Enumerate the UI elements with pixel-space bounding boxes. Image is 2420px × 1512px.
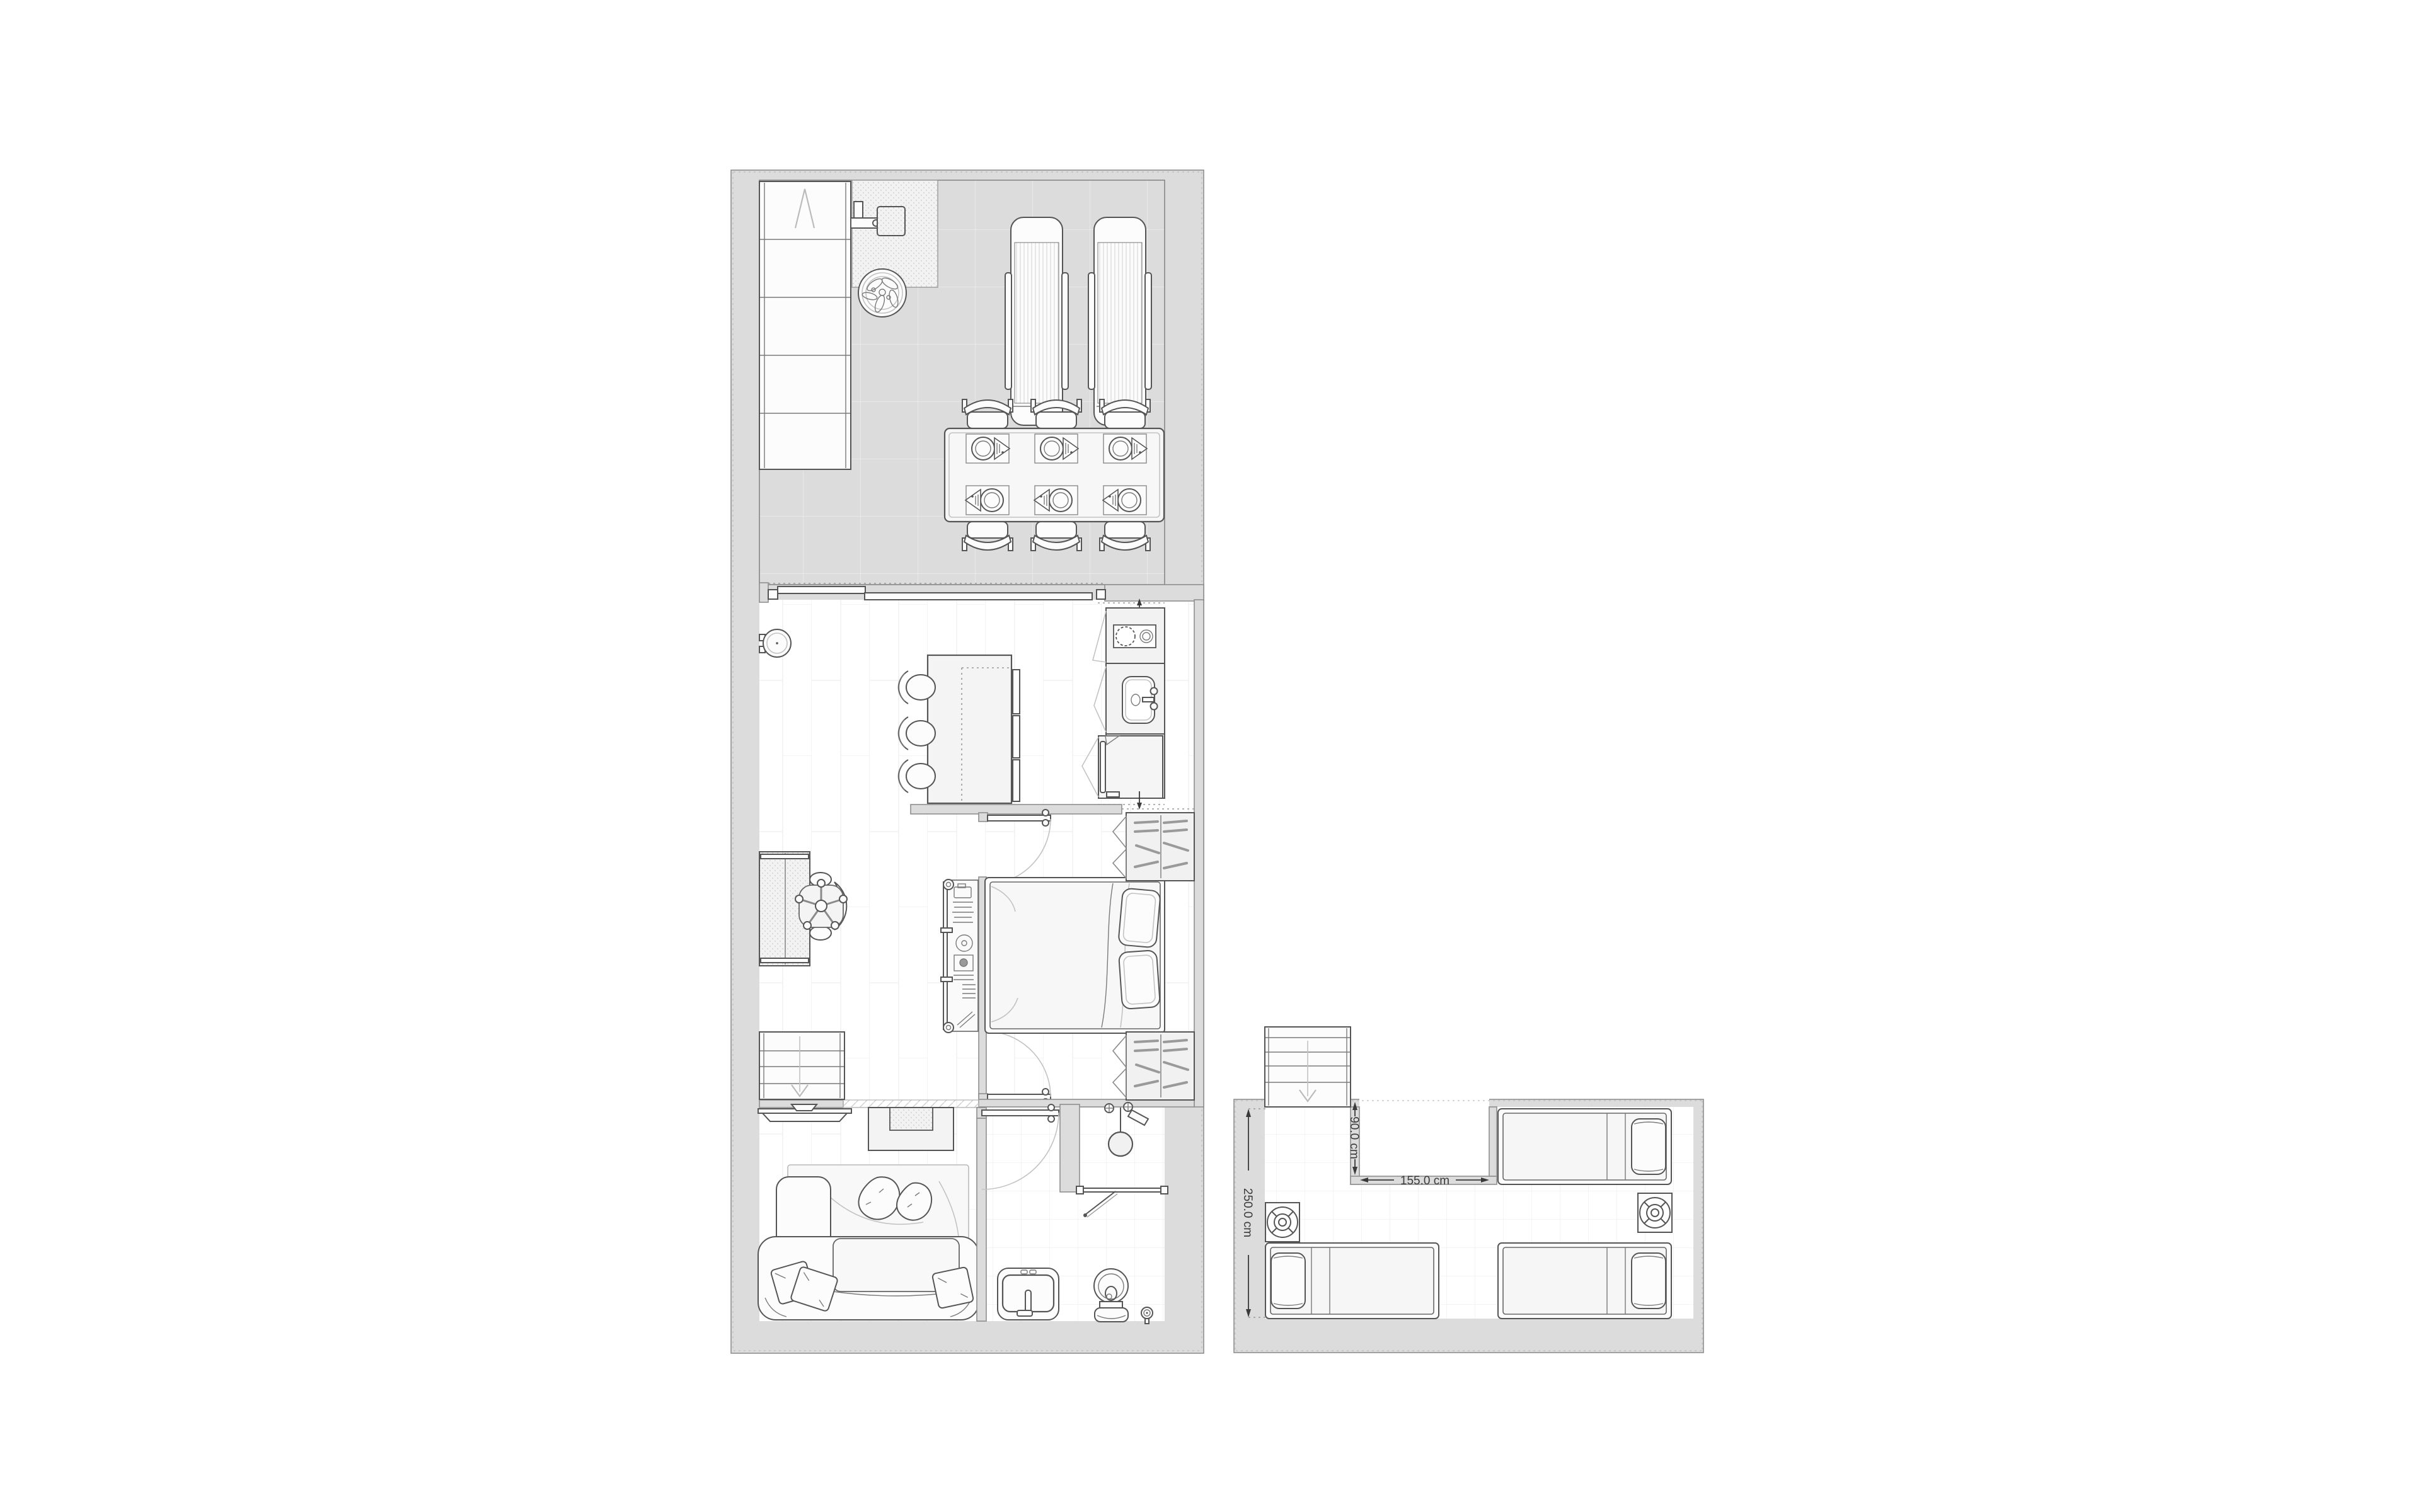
shelf-unit xyxy=(941,879,978,1033)
place-setting xyxy=(1034,486,1078,515)
partition-wall xyxy=(911,805,1122,814)
dimension-label-155: 155.0 cm xyxy=(1400,1174,1449,1188)
double-bed xyxy=(985,878,1165,1033)
kitchen-sink xyxy=(1122,677,1158,723)
toilet xyxy=(1094,1269,1128,1322)
dimension-label-90: 90.0 cm xyxy=(1347,1116,1361,1159)
floor-plan-page: 250.0 cm 90.0 cm 155.0 cm xyxy=(0,0,2420,1512)
staircase-down xyxy=(759,1032,844,1099)
bbq-grill xyxy=(851,180,938,287)
place-setting xyxy=(965,486,1009,515)
place-setting xyxy=(1035,434,1078,463)
dining-set xyxy=(945,399,1164,551)
place-setting xyxy=(1103,434,1147,463)
upper-staircase xyxy=(1265,1027,1351,1107)
single-bed xyxy=(1498,1243,1671,1319)
ceiling-spotlight-icon xyxy=(1638,1193,1672,1232)
single-bed xyxy=(1498,1109,1671,1184)
upper-floor-plan: 250.0 cm 90.0 cm 155.0 cm xyxy=(1234,1027,1703,1353)
cooktop xyxy=(1114,625,1156,648)
place-setting xyxy=(966,434,1010,463)
kitchen-island xyxy=(928,655,1020,803)
main-floor-plan xyxy=(731,170,1204,1353)
sun-lounger xyxy=(1005,217,1068,425)
potted-plant xyxy=(858,269,906,317)
shower-glass xyxy=(1080,1188,1165,1192)
washbasin xyxy=(998,1268,1059,1320)
single-bed xyxy=(1265,1243,1439,1319)
media-console xyxy=(868,1108,954,1150)
dimension-label-250: 250.0 cm xyxy=(1241,1188,1254,1237)
ceiling-spotlight-icon xyxy=(1265,1203,1299,1242)
floor-threshold xyxy=(843,1100,979,1108)
place-setting xyxy=(1103,486,1146,515)
staircase-up xyxy=(759,181,851,469)
floor-plan-canvas: 250.0 cm 90.0 cm 155.0 cm xyxy=(0,0,2420,1512)
sun-lounger xyxy=(1088,217,1151,425)
